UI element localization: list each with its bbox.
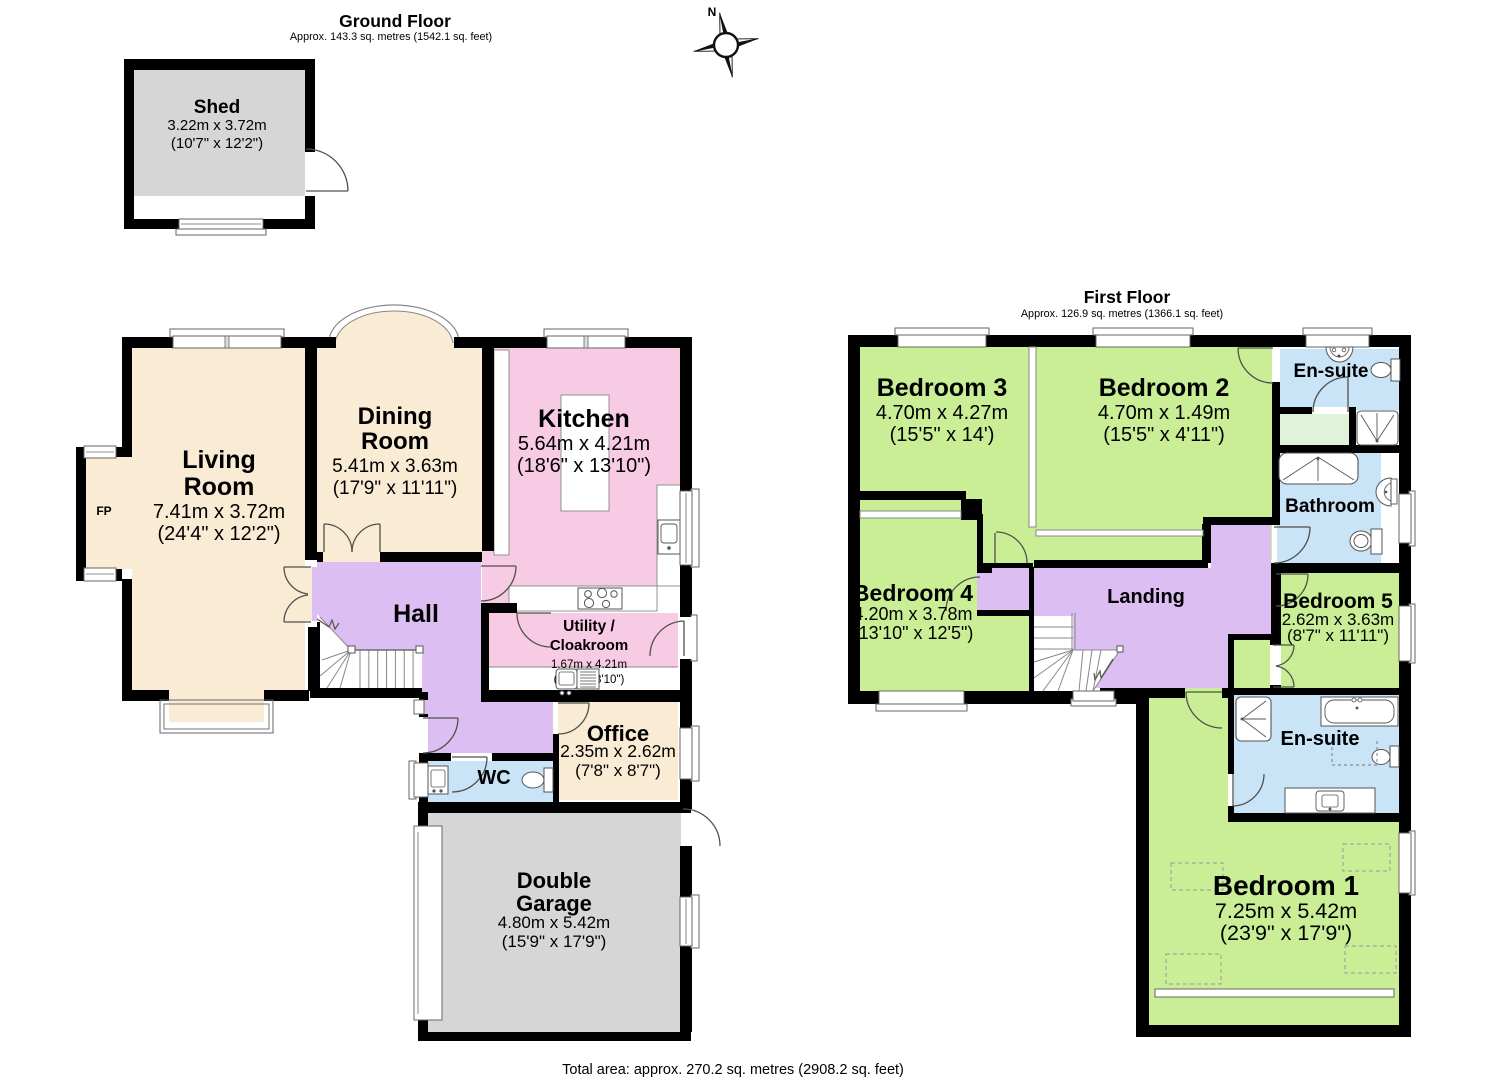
svg-text:Room: Room (361, 428, 429, 455)
svg-text:WC: WC (477, 767, 510, 789)
svg-text:En-suite: En-suite (1281, 728, 1360, 750)
svg-text:Approx. 143.3 sq. metres (1542: Approx. 143.3 sq. metres (1542.1 sq. fee… (290, 31, 492, 43)
svg-text:5.64m x 4.21m: 5.64m x 4.21m (518, 433, 650, 455)
svg-text:(23'9" x 17'9"): (23'9" x 17'9") (1220, 921, 1352, 945)
svg-text:Bedroom 1: Bedroom 1 (1213, 870, 1359, 901)
svg-text:N: N (708, 5, 717, 19)
svg-text:Kitchen: Kitchen (538, 405, 630, 433)
svg-text:First Floor: First Floor (1084, 287, 1171, 307)
svg-text:Shed: Shed (194, 97, 240, 118)
svg-text:(8'7" x 11'11"): (8'7" x 11'11") (1287, 626, 1389, 645)
svg-text:Bedroom 3: Bedroom 3 (877, 374, 1008, 402)
svg-text:(24'4" x 12'2"): (24'4" x 12'2") (157, 523, 280, 545)
svg-text:FP: FP (96, 504, 111, 518)
svg-text:Total area: approx. 270.2 sq.: Total area: approx. 270.2 sq. metres (29… (562, 1062, 904, 1078)
svg-text:Cloakroom: Cloakroom (550, 637, 628, 654)
svg-text:Landing: Landing (1107, 586, 1185, 608)
svg-text:Dining: Dining (358, 403, 433, 430)
svg-text:(18'6" x 13'10"): (18'6" x 13'10") (517, 455, 651, 477)
svg-text:Ground Floor: Ground Floor (339, 11, 451, 31)
svg-text:Bedroom 2: Bedroom 2 (1099, 374, 1230, 402)
svg-text:Double: Double (517, 868, 592, 893)
svg-text:4.70m x 1.49m: 4.70m x 1.49m (1098, 402, 1230, 424)
svg-text:7.25m x 5.42m: 7.25m x 5.42m (1215, 899, 1357, 923)
svg-text:En-suite: En-suite (1294, 361, 1369, 382)
svg-text:Living: Living (182, 446, 256, 474)
svg-text:7.41m x 3.72m: 7.41m x 3.72m (153, 501, 285, 523)
svg-text:4.80m x 5.42m: 4.80m x 5.42m (498, 913, 610, 932)
svg-text:(17'9" x 11'11"): (17'9" x 11'11") (333, 478, 458, 499)
svg-text:3.22m x 3.72m: 3.22m x 3.72m (167, 117, 266, 134)
svg-text:5.41m x 3.63m: 5.41m x 3.63m (332, 456, 458, 477)
svg-text:4.70m x 4.27m: 4.70m x 4.27m (876, 402, 1008, 424)
svg-text:2.35m x 2.62m: 2.35m x 2.62m (560, 741, 676, 761)
svg-text:(7'8" x 8'7"): (7'8" x 8'7") (575, 761, 661, 780)
svg-text:Hall: Hall (393, 600, 439, 628)
svg-text:Bedroom 4: Bedroom 4 (853, 580, 973, 606)
svg-text:4.20m x 3.78m: 4.20m x 3.78m (853, 604, 972, 624)
svg-text:Bathroom: Bathroom (1285, 496, 1375, 517)
svg-text:Approx. 126.9 sq. metres (1366: Approx. 126.9 sq. metres (1366.1 sq. fee… (1021, 308, 1223, 320)
svg-text:(15'5" x 14'): (15'5" x 14') (890, 424, 995, 446)
svg-text:(15'5" x 4'11"): (15'5" x 4'11") (1103, 424, 1225, 446)
svg-text:(15'9" x 17'9"): (15'9" x 17'9") (502, 932, 607, 951)
svg-text:(10'7" x 12'2"): (10'7" x 12'2") (171, 135, 263, 152)
svg-text:(13'10" x 12'5"): (13'10" x 12'5") (853, 623, 974, 643)
svg-text:Room: Room (184, 473, 255, 501)
svg-text:Utility /: Utility / (563, 618, 615, 635)
